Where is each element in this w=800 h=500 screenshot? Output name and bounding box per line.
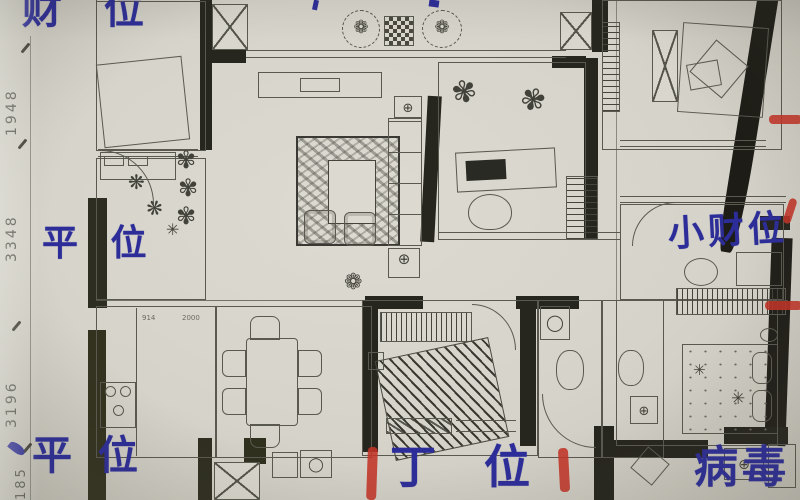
red-brush-mark-vertical [366, 447, 378, 500]
dim-914: 914 [142, 314, 155, 322]
plant-icon: ❁ [353, 17, 368, 38]
cutoff-ink-stroke [429, 0, 440, 8]
armchair [304, 210, 336, 244]
pillow [752, 352, 772, 384]
label-neutral-position-mid: 平 位 [42, 226, 157, 262]
hatched-counter [386, 418, 452, 434]
dimension-185: 185 [14, 454, 29, 500]
wardrobe-x [652, 30, 678, 102]
crosshair-icon: ⊕ [639, 404, 650, 419]
cabinet-hatched [566, 176, 598, 240]
dimension-tick [11, 320, 21, 331]
toilet [684, 258, 718, 286]
basin-icon: ◯ [546, 313, 564, 332]
cutoff-ink-stroke [312, 0, 319, 10]
dimension-tick [17, 138, 27, 149]
armchair [344, 212, 376, 246]
column-x-top-left [212, 4, 248, 50]
counter [272, 452, 298, 478]
plant-column-icon: ✾ [178, 176, 198, 200]
bed-top-left [96, 56, 190, 149]
potted-plant: ❁ [342, 10, 380, 48]
label-ding-position: 丁 位 [390, 444, 546, 490]
counter-line [456, 420, 516, 432]
dimension-tick [20, 42, 30, 53]
label-virus-position: 病毒 [694, 446, 790, 490]
column-x-bottom [214, 462, 260, 500]
dining-chair [222, 388, 246, 415]
crosshair-icon: ⊕ [403, 101, 414, 116]
red-line-right-mid [765, 301, 800, 310]
label-neutral-position-bottom: 平 位 [32, 436, 144, 476]
pillow [686, 59, 722, 90]
stove [100, 382, 136, 428]
sink: ◯ [540, 306, 570, 340]
label-small-wealth-position: 小财位 [667, 211, 789, 253]
dimension-1948: 1948 [4, 60, 20, 136]
bedside-table [368, 352, 384, 370]
toilet [556, 350, 584, 390]
bedside-lamp [760, 328, 778, 342]
dining-chair [298, 388, 322, 415]
pillow [752, 390, 772, 422]
dining-chair [298, 350, 322, 377]
dining-table [246, 338, 298, 426]
toilet [618, 350, 644, 386]
desk-chair [468, 194, 512, 230]
small-wealth-top-wall [620, 196, 786, 203]
burner-icon [120, 386, 131, 397]
column-x-balcony [560, 12, 592, 50]
balcony-rail [246, 50, 566, 58]
dining-chair [222, 350, 246, 377]
pillow [128, 156, 148, 166]
bedroom-right-bottom-wall [620, 140, 766, 147]
washbasin: ⊕ [630, 396, 658, 424]
plant-column-icon: ✾ [176, 148, 196, 172]
dimension-3348: 3348 [4, 166, 20, 262]
wardrobe [380, 312, 472, 342]
label-wealth-position: 财 位 [22, 0, 158, 30]
mosaic-tile [384, 16, 414, 46]
side-table: ⊕ [394, 96, 422, 118]
dining-chair [250, 424, 280, 448]
cabinet [602, 22, 620, 112]
crosshair-icon: ⊕ [398, 250, 411, 268]
plant-column-icon: ✾ [176, 204, 196, 228]
star-icon: ✳ [693, 363, 706, 378]
potted-plant: ❁ [422, 10, 462, 48]
fixture [736, 252, 782, 286]
plant-icon: ❋ [128, 172, 145, 192]
floorplan-photo: 1948 3348 3196 185 ❋ [0, 0, 800, 500]
burner-icon [113, 405, 124, 416]
drum-icon: ◯ [308, 457, 324, 473]
washer: ◯ [300, 450, 332, 478]
star-icon: ✳ [731, 391, 745, 408]
dim-2000: 2000 [182, 314, 200, 322]
dimension-3196: 3196 [4, 342, 20, 428]
tv [300, 78, 340, 92]
wall-stub [200, 50, 246, 63]
laptop [466, 159, 507, 181]
dimension-line [30, 36, 31, 500]
sofa [388, 118, 422, 246]
plant-icon: ❁ [344, 272, 362, 294]
plant-icon: ❁ [434, 17, 449, 38]
burner-icon [105, 386, 116, 397]
red-line-right-top [769, 115, 800, 124]
side-table: ⊕ [388, 248, 420, 278]
pillow [104, 156, 124, 166]
dining-chair [250, 316, 280, 340]
